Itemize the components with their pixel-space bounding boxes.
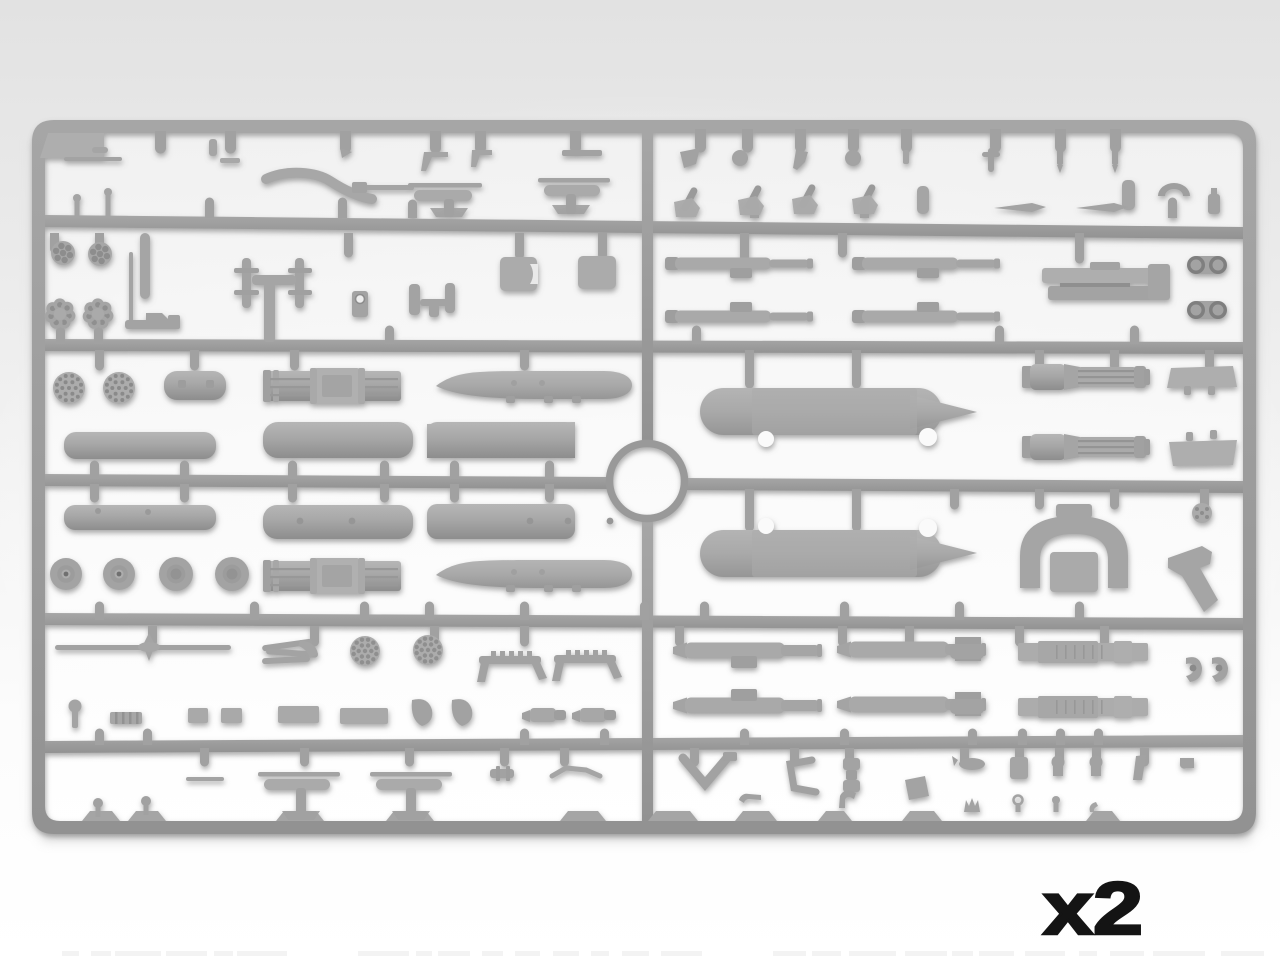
- svg-text:x2: x2: [1043, 867, 1143, 950]
